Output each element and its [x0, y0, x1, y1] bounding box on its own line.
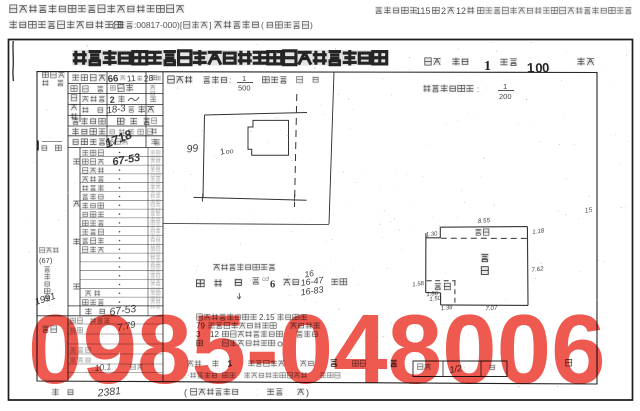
svg-text:1.30: 1.30 — [426, 231, 439, 238]
svg-text:6: 6 — [270, 280, 275, 291]
svg-text:0985-048006: 0985-048006 — [28, 294, 606, 404]
svg-text:1: 1 — [484, 59, 491, 74]
svg-text:500: 500 — [238, 84, 251, 93]
svg-text:(: ( — [112, 20, 115, 30]
svg-text:cd: cd — [262, 276, 269, 283]
svg-text:115: 115 — [416, 6, 430, 16]
svg-text:1: 1 — [527, 60, 536, 75]
svg-text:2: 2 — [441, 6, 446, 16]
svg-text:00: 00 — [535, 60, 549, 75]
svg-text:): ) — [310, 20, 313, 30]
svg-text:1: 1 — [503, 82, 507, 91]
svg-text:11: 11 — [126, 73, 136, 84]
svg-text:(: ( — [261, 20, 264, 30]
svg-text:1: 1 — [242, 74, 246, 83]
svg-text:]: ] — [209, 20, 211, 30]
svg-text:oo: oo — [225, 148, 234, 156]
svg-text:12: 12 — [456, 6, 466, 16]
svg-text:8.55: 8.55 — [478, 217, 491, 225]
svg-text:200: 200 — [499, 92, 512, 101]
svg-text::: : — [477, 85, 479, 94]
svg-text::: : — [229, 76, 231, 85]
svg-text:99: 99 — [186, 142, 199, 155]
svg-text::00817-000)[: :00817-000)[ — [134, 20, 183, 30]
svg-text:15: 15 — [584, 207, 593, 215]
svg-text:66: 66 — [107, 73, 118, 85]
